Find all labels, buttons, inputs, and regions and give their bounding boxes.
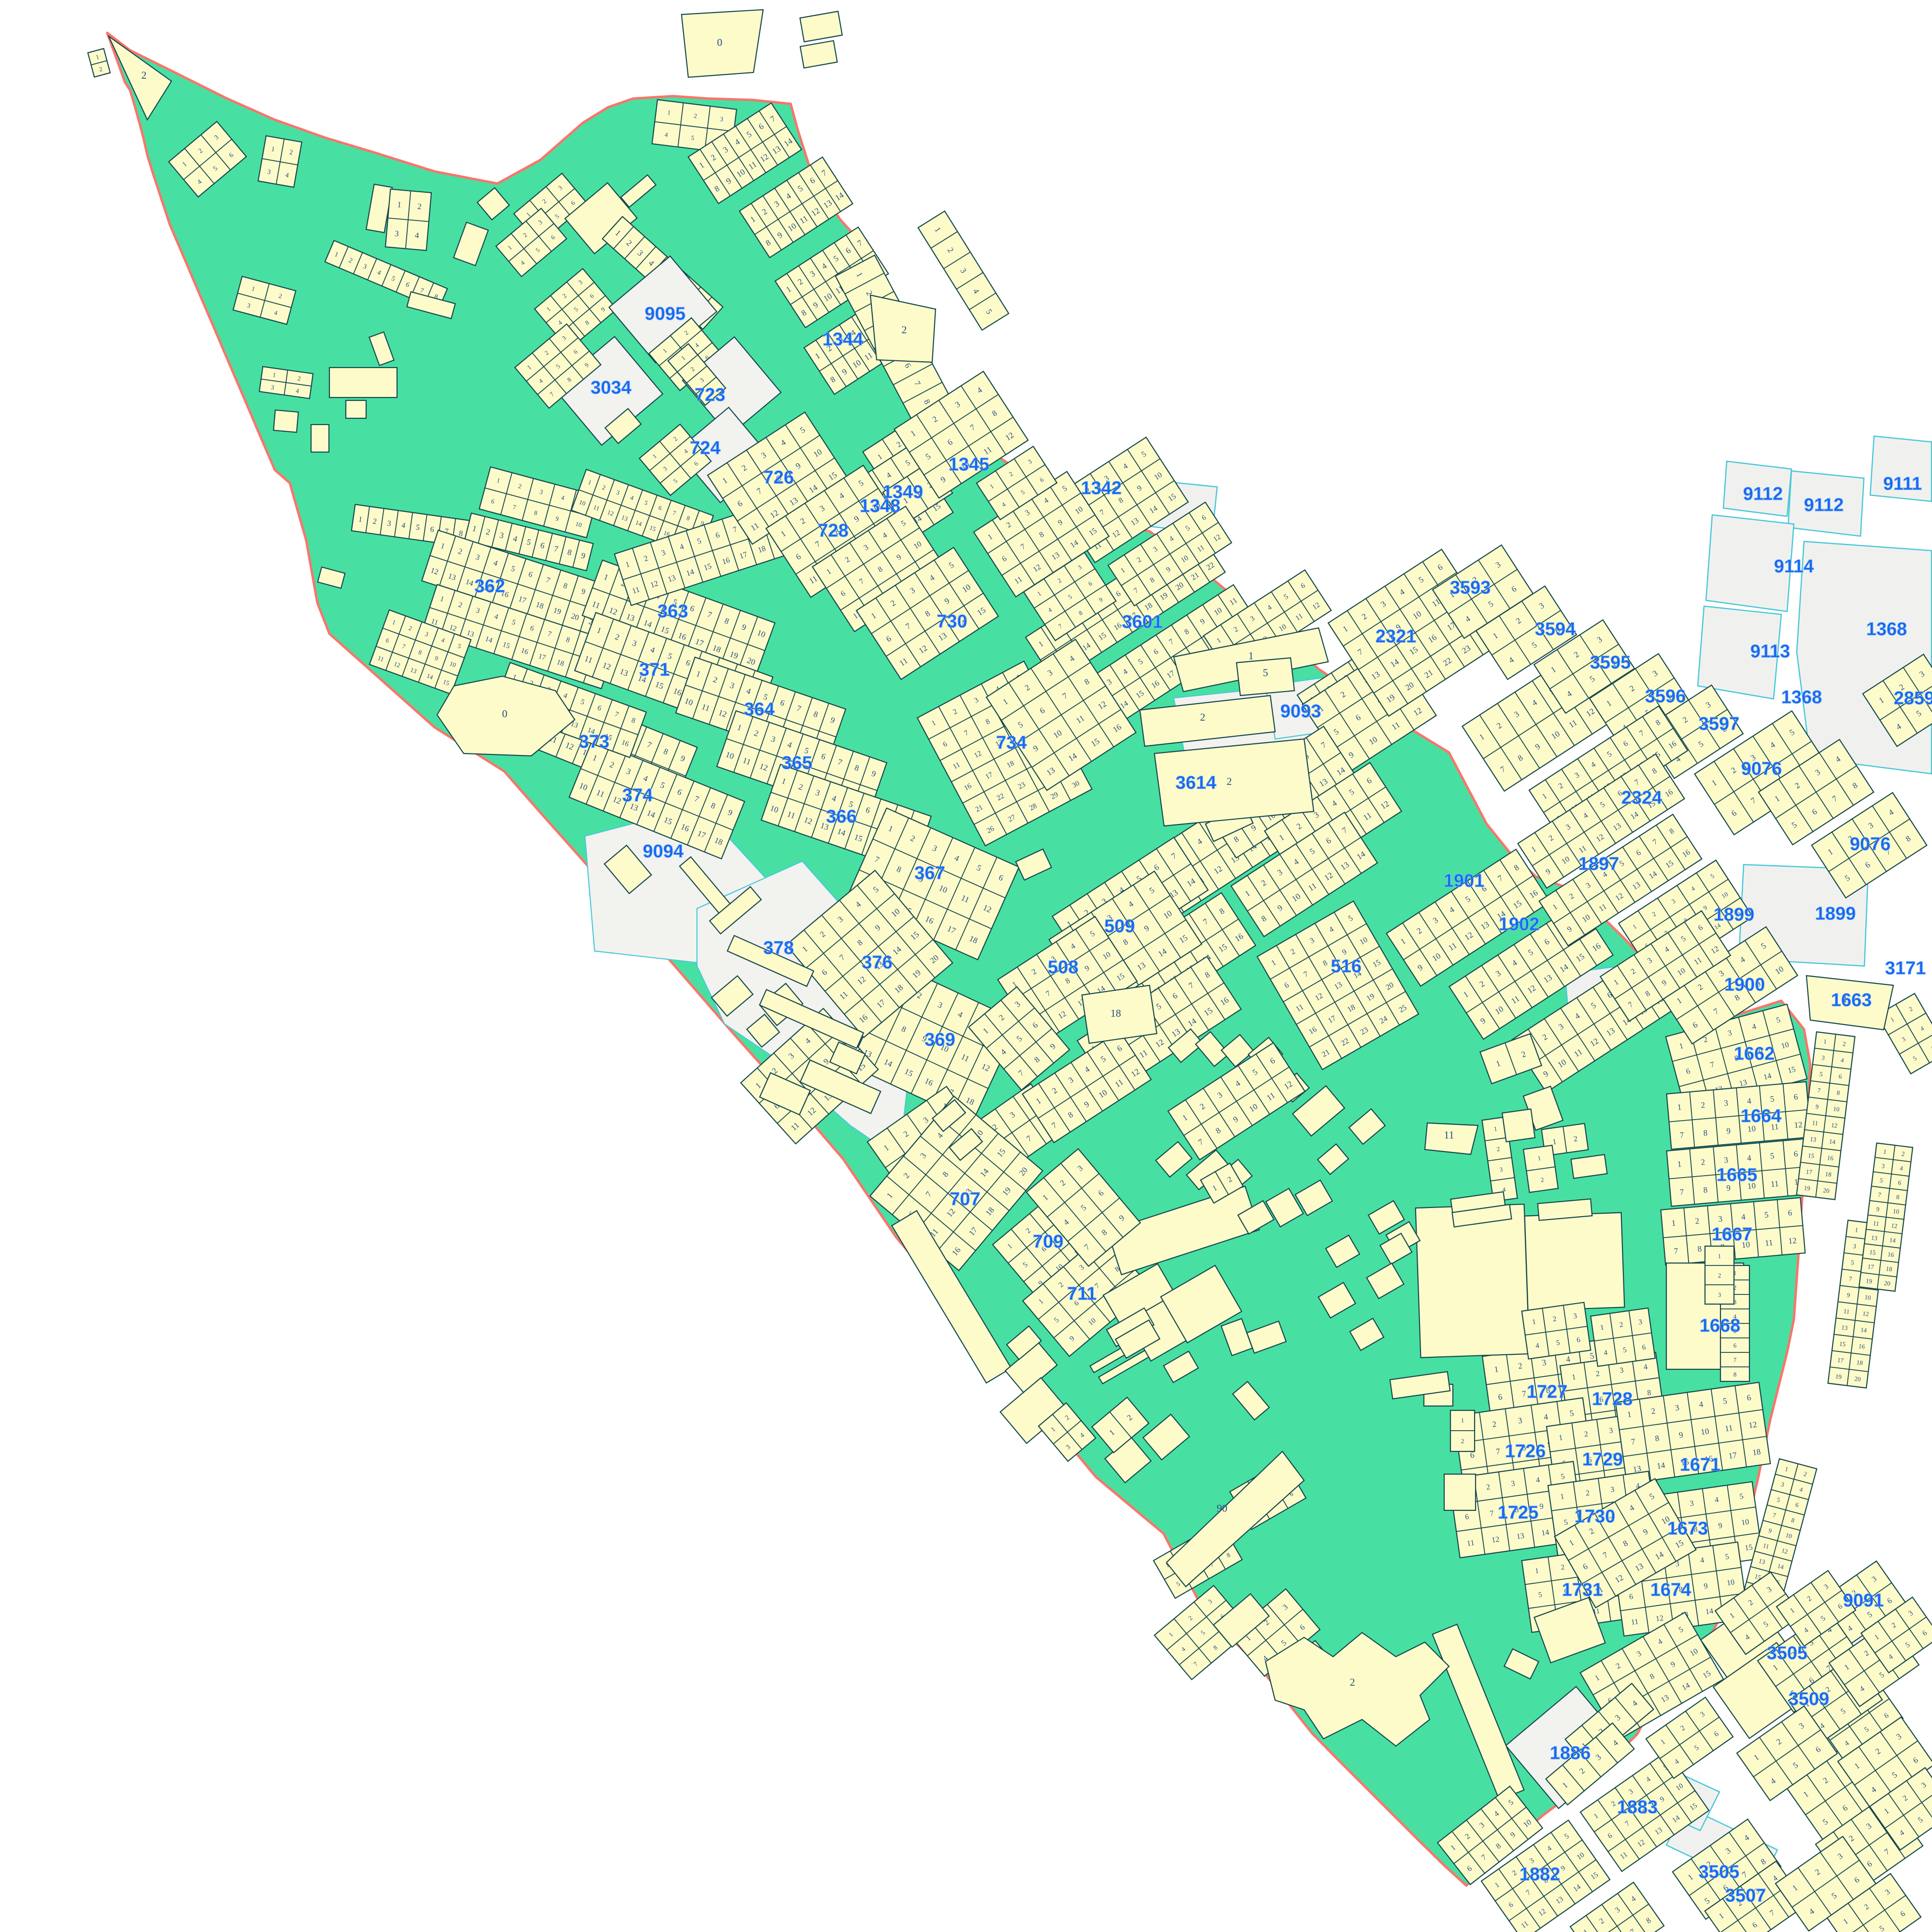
svg-text:14: 14 — [1541, 1528, 1549, 1537]
svg-text:9076: 9076 — [1741, 759, 1782, 779]
svg-text:6: 6 — [1793, 1092, 1798, 1102]
svg-text:362: 362 — [474, 576, 505, 597]
svg-text:11: 11 — [1770, 1179, 1779, 1189]
svg-text:17: 17 — [1867, 1263, 1875, 1271]
svg-text:734: 734 — [996, 733, 1026, 753]
svg-text:11: 11 — [1812, 1119, 1818, 1127]
svg-text:10: 10 — [1864, 1293, 1871, 1301]
svg-text:1725: 1725 — [1498, 1503, 1539, 1523]
svg-text:3171: 3171 — [1885, 958, 1926, 979]
svg-text:1667: 1667 — [1712, 1224, 1753, 1245]
svg-text:1729: 1729 — [1582, 1449, 1623, 1470]
svg-text:19: 19 — [1835, 1373, 1842, 1380]
svg-text:2: 2 — [1227, 775, 1232, 787]
svg-text:3509: 3509 — [1789, 1689, 1830, 1709]
svg-text:709: 709 — [1033, 1232, 1063, 1252]
svg-text:8: 8 — [1703, 1185, 1708, 1195]
svg-text:12: 12 — [1491, 1535, 1500, 1545]
svg-text:8: 8 — [1703, 1128, 1708, 1138]
svg-text:5: 5 — [1770, 1151, 1775, 1161]
svg-text:2: 2 — [1461, 1437, 1464, 1445]
svg-text:1901: 1901 — [1444, 871, 1485, 891]
svg-text:6: 6 — [1788, 1208, 1792, 1218]
svg-text:12: 12 — [1788, 1236, 1797, 1246]
svg-text:18: 18 — [1752, 1447, 1761, 1457]
svg-text:509: 509 — [1104, 916, 1135, 937]
svg-text:1: 1 — [1677, 1102, 1682, 1112]
svg-text:14: 14 — [1829, 1137, 1836, 1146]
svg-text:9114: 9114 — [1774, 556, 1814, 577]
svg-text:365: 365 — [781, 753, 812, 773]
svg-text:17: 17 — [1837, 1356, 1844, 1364]
svg-text:1900: 1900 — [1724, 975, 1765, 995]
svg-text:730: 730 — [937, 611, 967, 632]
svg-text:3: 3 — [394, 229, 399, 239]
svg-text:3: 3 — [1724, 1155, 1729, 1165]
svg-text:12: 12 — [1891, 1222, 1898, 1229]
svg-text:9076: 9076 — [1850, 834, 1891, 854]
svg-text:2: 2 — [1701, 1157, 1705, 1167]
svg-text:1665: 1665 — [1717, 1165, 1758, 1185]
svg-text:13: 13 — [1516, 1532, 1525, 1541]
svg-text:20: 20 — [1884, 1279, 1891, 1287]
svg-text:367: 367 — [914, 863, 945, 883]
svg-text:726: 726 — [763, 468, 794, 488]
svg-text:11: 11 — [1724, 1423, 1733, 1434]
svg-text:11: 11 — [1631, 1618, 1639, 1627]
svg-text:17: 17 — [1805, 1168, 1813, 1176]
svg-text:2: 2 — [417, 202, 422, 212]
svg-text:707: 707 — [950, 1189, 980, 1209]
svg-text:3596: 3596 — [1645, 686, 1686, 707]
svg-text:5: 5 — [1770, 1094, 1775, 1104]
svg-text:724: 724 — [690, 438, 720, 458]
svg-text:10: 10 — [1726, 1578, 1735, 1587]
svg-text:723: 723 — [695, 385, 725, 405]
svg-text:3601: 3601 — [1122, 612, 1163, 632]
svg-text:2: 2 — [1695, 1216, 1700, 1226]
svg-text:2: 2 — [902, 324, 907, 336]
svg-text:363: 363 — [657, 601, 688, 622]
svg-text:90: 90 — [1217, 1502, 1227, 1514]
svg-text:1727: 1727 — [1527, 1382, 1568, 1402]
svg-text:3595: 3595 — [1590, 653, 1631, 673]
svg-text:17: 17 — [1728, 1450, 1738, 1461]
svg-text:516: 516 — [1331, 956, 1361, 977]
svg-text:378: 378 — [763, 938, 794, 958]
svg-text:1728: 1728 — [1592, 1389, 1633, 1409]
svg-text:1368: 1368 — [1781, 687, 1822, 708]
svg-text:11: 11 — [1764, 1238, 1773, 1248]
svg-text:1344: 1344 — [823, 329, 864, 350]
svg-text:10: 10 — [1700, 1426, 1709, 1436]
svg-text:508: 508 — [1048, 957, 1078, 978]
svg-text:15: 15 — [1839, 1340, 1846, 1348]
svg-text:10: 10 — [1741, 1518, 1749, 1527]
svg-text:1662: 1662 — [1734, 1044, 1775, 1064]
svg-text:1730: 1730 — [1575, 1506, 1616, 1527]
svg-text:15: 15 — [1869, 1248, 1876, 1256]
svg-text:12: 12 — [1831, 1122, 1838, 1129]
svg-text:5: 5 — [1263, 667, 1268, 679]
svg-text:15: 15 — [1744, 1543, 1753, 1552]
svg-text:8: 8 — [1733, 1371, 1737, 1378]
svg-text:2: 2 — [1350, 1676, 1355, 1688]
svg-text:3: 3 — [1718, 1291, 1721, 1298]
svg-text:5: 5 — [1764, 1210, 1769, 1220]
svg-text:2321: 2321 — [1376, 626, 1417, 647]
svg-text:1886: 1886 — [1550, 1743, 1591, 1763]
svg-text:1897: 1897 — [1578, 854, 1619, 874]
svg-text:1368: 1368 — [1866, 619, 1907, 639]
svg-text:369: 369 — [924, 1030, 955, 1050]
svg-text:376: 376 — [862, 952, 892, 973]
svg-text:1: 1 — [1461, 1417, 1464, 1424]
svg-text:9112: 9112 — [1804, 495, 1844, 515]
svg-text:1: 1 — [1671, 1218, 1676, 1228]
svg-text:1899: 1899 — [1714, 905, 1755, 925]
svg-text:3594: 3594 — [1535, 619, 1576, 639]
svg-text:3505: 3505 — [1699, 1862, 1740, 1882]
svg-text:11: 11 — [1444, 1129, 1454, 1141]
svg-text:18: 18 — [1886, 1265, 1893, 1273]
svg-text:6: 6 — [1733, 1342, 1737, 1349]
svg-text:2: 2 — [1718, 1272, 1721, 1279]
svg-text:9095: 9095 — [645, 304, 686, 324]
svg-text:18: 18 — [1856, 1359, 1863, 1366]
svg-text:8: 8 — [1697, 1244, 1702, 1254]
svg-text:10: 10 — [1833, 1105, 1840, 1113]
svg-text:1668: 1668 — [1700, 1316, 1741, 1336]
svg-text:14: 14 — [1860, 1326, 1867, 1334]
svg-text:10: 10 — [1892, 1207, 1900, 1215]
svg-text:1345: 1345 — [949, 455, 990, 475]
svg-text:11: 11 — [1873, 1220, 1879, 1227]
svg-text:18: 18 — [1825, 1170, 1832, 1178]
svg-text:13: 13 — [1810, 1135, 1817, 1143]
svg-text:1: 1 — [1249, 650, 1254, 662]
svg-text:19: 19 — [1804, 1184, 1811, 1192]
svg-text:20: 20 — [1823, 1187, 1830, 1194]
svg-text:0: 0 — [502, 708, 508, 720]
svg-text:11: 11 — [1466, 1539, 1475, 1548]
svg-text:14: 14 — [1705, 1607, 1714, 1616]
svg-text:3: 3 — [1718, 1214, 1723, 1224]
svg-text:1342: 1342 — [1081, 478, 1122, 498]
svg-text:12: 12 — [1794, 1120, 1803, 1130]
svg-text:1664: 1664 — [1741, 1106, 1782, 1126]
svg-text:7: 7 — [1733, 1356, 1737, 1364]
svg-text:3597: 3597 — [1699, 714, 1740, 734]
svg-text:1899: 1899 — [1815, 904, 1856, 924]
svg-text:12: 12 — [1655, 1614, 1664, 1623]
svg-text:16: 16 — [1887, 1250, 1894, 1259]
svg-text:373: 373 — [579, 732, 609, 752]
svg-text:711: 711 — [1067, 1284, 1096, 1304]
svg-text:9094: 9094 — [643, 841, 684, 862]
svg-text:19: 19 — [1865, 1277, 1873, 1285]
svg-text:1726: 1726 — [1505, 1441, 1546, 1462]
svg-text:0: 0 — [717, 36, 723, 48]
svg-text:3: 3 — [1724, 1098, 1729, 1108]
svg-text:1: 1 — [1718, 1252, 1721, 1260]
svg-text:1349: 1349 — [882, 482, 923, 502]
svg-text:2: 2 — [1200, 711, 1206, 723]
svg-text:1673: 1673 — [1667, 1519, 1708, 1539]
svg-text:1731: 1731 — [1562, 1580, 1603, 1600]
svg-text:9093: 9093 — [1280, 701, 1321, 722]
svg-text:371: 371 — [639, 660, 669, 680]
svg-text:366: 366 — [826, 807, 856, 827]
svg-text:11: 11 — [1843, 1307, 1850, 1315]
svg-text:1882: 1882 — [1520, 1864, 1561, 1885]
svg-text:20: 20 — [1854, 1375, 1861, 1383]
svg-text:16: 16 — [1827, 1154, 1834, 1162]
svg-text:14: 14 — [1889, 1236, 1896, 1244]
svg-text:1902: 1902 — [1499, 914, 1540, 935]
svg-text:1883: 1883 — [1617, 1797, 1658, 1818]
svg-text:14: 14 — [1656, 1461, 1666, 1471]
svg-text:1671: 1671 — [1680, 1455, 1721, 1475]
svg-text:3505: 3505 — [1767, 1643, 1808, 1663]
svg-text:1: 1 — [1677, 1159, 1682, 1169]
svg-text:9091: 9091 — [1843, 1591, 1884, 1611]
svg-text:9113: 9113 — [1750, 641, 1790, 662]
svg-text:2: 2 — [142, 69, 147, 81]
svg-text:364: 364 — [744, 699, 774, 720]
svg-text:3507: 3507 — [1725, 1886, 1766, 1906]
svg-text:16: 16 — [1858, 1342, 1865, 1350]
svg-text:12: 12 — [1862, 1310, 1869, 1318]
svg-text:13: 13 — [1841, 1323, 1848, 1331]
svg-text:6: 6 — [1793, 1149, 1798, 1159]
svg-text:15: 15 — [1807, 1151, 1815, 1159]
svg-text:18: 18 — [1110, 1007, 1121, 1019]
svg-text:2324: 2324 — [1621, 788, 1662, 808]
svg-text:2: 2 — [1701, 1100, 1705, 1110]
svg-text:13: 13 — [1871, 1234, 1878, 1242]
svg-text:9111: 9111 — [1883, 474, 1922, 494]
svg-text:2859: 2859 — [1894, 688, 1932, 709]
svg-text:12: 12 — [1748, 1420, 1757, 1430]
svg-text:374: 374 — [622, 785, 653, 806]
svg-text:1674: 1674 — [1650, 1580, 1691, 1600]
svg-text:3614: 3614 — [1176, 773, 1217, 793]
svg-text:1663: 1663 — [1831, 990, 1872, 1010]
svg-text:1: 1 — [397, 200, 402, 210]
svg-text:3034: 3034 — [591, 378, 632, 398]
svg-text:728: 728 — [818, 521, 848, 541]
svg-text:9: 9 — [1726, 1126, 1731, 1136]
svg-text:3593: 3593 — [1450, 578, 1491, 598]
svg-text:9112: 9112 — [1743, 484, 1783, 504]
